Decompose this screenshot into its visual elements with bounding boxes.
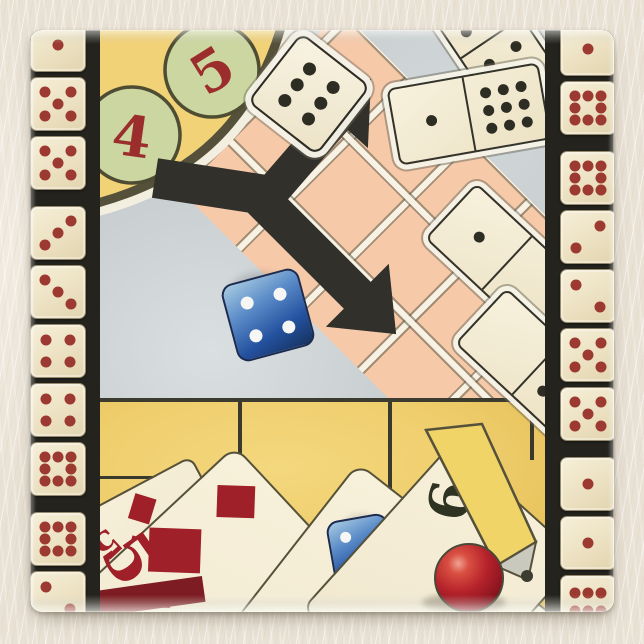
pip (65, 476, 76, 487)
pip (41, 393, 52, 404)
pip (65, 145, 76, 156)
pip (594, 220, 605, 231)
pip (65, 170, 76, 181)
pip (583, 606, 594, 612)
pip (53, 476, 64, 487)
pip (65, 86, 76, 97)
pip (583, 587, 594, 598)
pencil-point (521, 570, 533, 582)
pip (65, 521, 76, 532)
pip (40, 86, 51, 97)
pip (583, 160, 594, 171)
pip (65, 299, 76, 310)
pip (64, 334, 75, 345)
pip (570, 587, 581, 598)
pip (64, 416, 75, 427)
pip (595, 337, 606, 348)
pip (65, 111, 76, 122)
domino-tile (30, 571, 86, 612)
pip (53, 546, 64, 557)
pip (53, 158, 64, 169)
domino-tile (30, 77, 86, 131)
pip (570, 362, 581, 373)
coaster-artwork: 4 5 (100, 30, 545, 612)
pip (40, 145, 51, 156)
pip (570, 160, 581, 171)
pip (570, 90, 581, 101)
pip (53, 451, 64, 462)
domino-tile (560, 387, 614, 441)
domino-tile (560, 516, 614, 570)
pip (571, 279, 582, 290)
pip (570, 185, 581, 196)
domino-tile (30, 30, 86, 72)
pip (65, 546, 76, 557)
pip (595, 396, 606, 407)
pip (41, 357, 52, 368)
domino-tile (30, 136, 86, 190)
pip (64, 357, 75, 368)
pip (595, 173, 606, 184)
pip (53, 99, 64, 110)
pip (595, 103, 606, 114)
pip (595, 421, 606, 432)
pip (570, 421, 581, 432)
domino-tile (30, 442, 86, 496)
pip (41, 581, 52, 592)
pip (595, 90, 606, 101)
pip (40, 534, 51, 545)
pip (583, 115, 594, 126)
left-domino-strip (30, 30, 84, 612)
pip (65, 215, 76, 226)
pip (583, 185, 594, 196)
pip (53, 521, 64, 532)
pip (40, 546, 51, 557)
pip (40, 111, 51, 122)
domino-tile (30, 206, 86, 260)
pip (40, 464, 51, 475)
pip (583, 44, 594, 55)
pip (594, 302, 605, 313)
domino-tile (560, 151, 614, 205)
pip (41, 334, 52, 345)
pip (570, 396, 581, 407)
pip (40, 240, 51, 251)
right-domino-strip (560, 30, 614, 612)
pencil (100, 30, 545, 612)
domino-tile (560, 269, 614, 323)
pip (65, 534, 76, 545)
pip (64, 393, 75, 404)
pip (65, 464, 76, 475)
pip (571, 243, 582, 254)
domino-tile (560, 328, 614, 382)
domino-tile (560, 210, 614, 264)
domino-tile (560, 30, 614, 76)
pip (595, 587, 606, 598)
pip (595, 606, 606, 612)
domino-tile (560, 457, 614, 511)
pip (40, 476, 51, 487)
pip (583, 479, 594, 490)
pip (53, 287, 64, 298)
pip (570, 337, 581, 348)
pip (570, 115, 581, 126)
pip (595, 160, 606, 171)
pip (40, 521, 51, 532)
pip (583, 538, 594, 549)
domino-tile (560, 81, 614, 135)
pip (570, 103, 581, 114)
pip (64, 604, 75, 612)
pip (570, 173, 581, 184)
pip (583, 90, 594, 101)
pip (40, 451, 51, 462)
pip (40, 170, 51, 181)
pip (53, 228, 64, 239)
pip (41, 416, 52, 427)
domino-tile (560, 575, 614, 612)
pip (583, 350, 594, 361)
pip (40, 274, 51, 285)
pip (583, 409, 594, 420)
pip (53, 40, 64, 51)
red-ball (434, 543, 504, 612)
pip (595, 185, 606, 196)
domino-tile (30, 383, 86, 437)
pip (65, 451, 76, 462)
pip (595, 115, 606, 126)
domino-tile (30, 265, 86, 319)
domino-tile (30, 512, 86, 566)
pip (570, 606, 581, 612)
glass-coaster: 4 5 (30, 30, 614, 612)
domino-tile (30, 324, 86, 378)
pip (595, 362, 606, 373)
